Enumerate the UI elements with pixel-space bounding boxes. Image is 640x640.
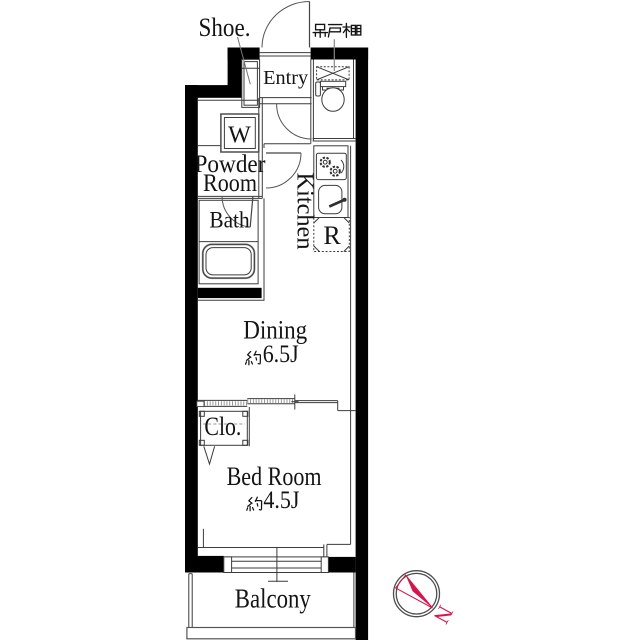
svg-text:Bath: Bath — [209, 208, 250, 233]
svg-text:Kitchen: Kitchen — [292, 173, 319, 250]
svg-text:Balcony: Balcony — [235, 583, 311, 613]
svg-text:Room: Room — [203, 168, 257, 197]
svg-text:R: R — [323, 221, 341, 250]
svg-text:Entry: Entry — [263, 67, 309, 89]
svg-text:6.5J: 6.5J — [263, 339, 299, 368]
svg-text:4.5J: 4.5J — [263, 485, 299, 514]
svg-text:W: W — [228, 123, 251, 149]
svg-text:Shoe.: Shoe. — [199, 12, 251, 42]
svg-text:Clo.: Clo. — [204, 412, 241, 441]
